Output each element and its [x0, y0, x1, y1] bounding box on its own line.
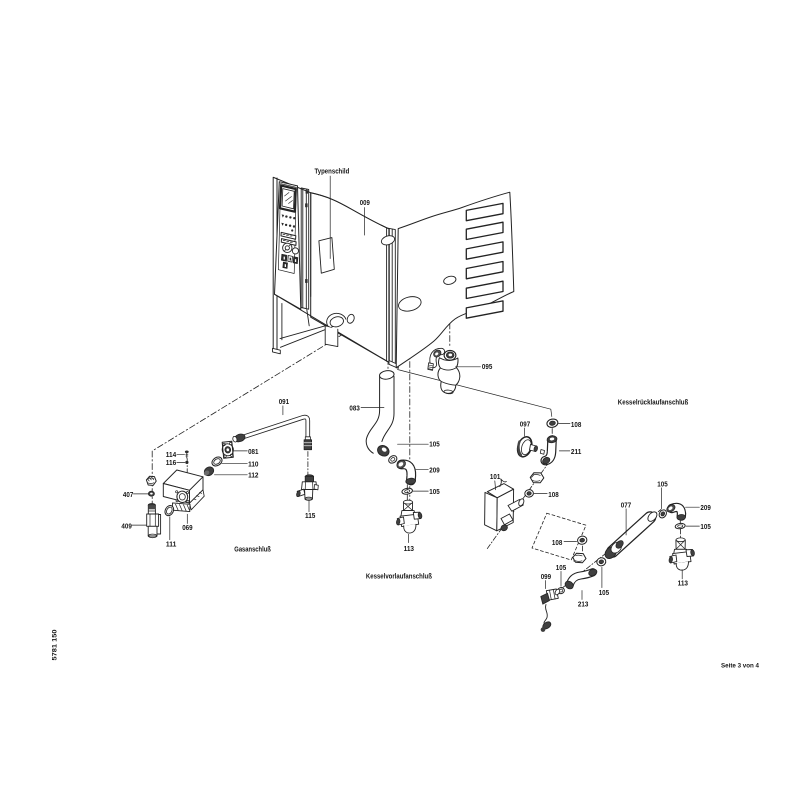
svg-text:211: 211 [571, 447, 581, 456]
svg-text:108: 108 [548, 490, 558, 499]
svg-text:099: 099 [541, 572, 551, 581]
svg-text:5781 150: 5781 150 [52, 629, 59, 661]
svg-text:209: 209 [700, 503, 710, 512]
svg-text:069: 069 [182, 523, 192, 532]
svg-text:097: 097 [520, 419, 530, 428]
svg-text:105: 105 [556, 563, 566, 572]
svg-text:112: 112 [248, 470, 258, 479]
svg-text:105: 105 [657, 479, 667, 488]
svg-text:Seite 3 von 4: Seite 3 von 4 [721, 663, 759, 670]
svg-text:111: 111 [166, 539, 176, 548]
svg-text:113: 113 [404, 544, 414, 553]
svg-text:108: 108 [552, 538, 562, 547]
svg-text:213: 213 [578, 600, 588, 609]
svg-text:105: 105 [429, 487, 439, 496]
svg-text:081: 081 [248, 447, 258, 456]
svg-text:095: 095 [482, 362, 492, 371]
svg-text:108: 108 [571, 420, 581, 429]
svg-text:Gasanschluß: Gasanschluß [234, 545, 271, 554]
svg-text:091: 091 [279, 397, 289, 406]
svg-text:Typenschild: Typenschild [315, 166, 350, 175]
svg-text:105: 105 [599, 588, 609, 597]
svg-text:110: 110 [248, 460, 258, 469]
svg-text:Kesselrücklaufanschluß: Kesselrücklaufanschluß [618, 397, 689, 406]
svg-text:407: 407 [123, 490, 133, 499]
svg-text:077: 077 [621, 500, 631, 509]
svg-text:409: 409 [121, 522, 131, 531]
svg-text:083: 083 [349, 403, 359, 412]
svg-text:009: 009 [360, 198, 370, 207]
svg-text:105: 105 [429, 440, 439, 449]
svg-text:101: 101 [490, 472, 500, 481]
svg-text:113: 113 [678, 579, 688, 588]
svg-text:105: 105 [700, 522, 710, 531]
svg-text:115: 115 [305, 511, 315, 520]
svg-text:Kesselvorlaufanschluß: Kesselvorlaufanschluß [366, 571, 433, 580]
svg-text:209: 209 [429, 465, 439, 474]
svg-text:116: 116 [166, 458, 176, 467]
